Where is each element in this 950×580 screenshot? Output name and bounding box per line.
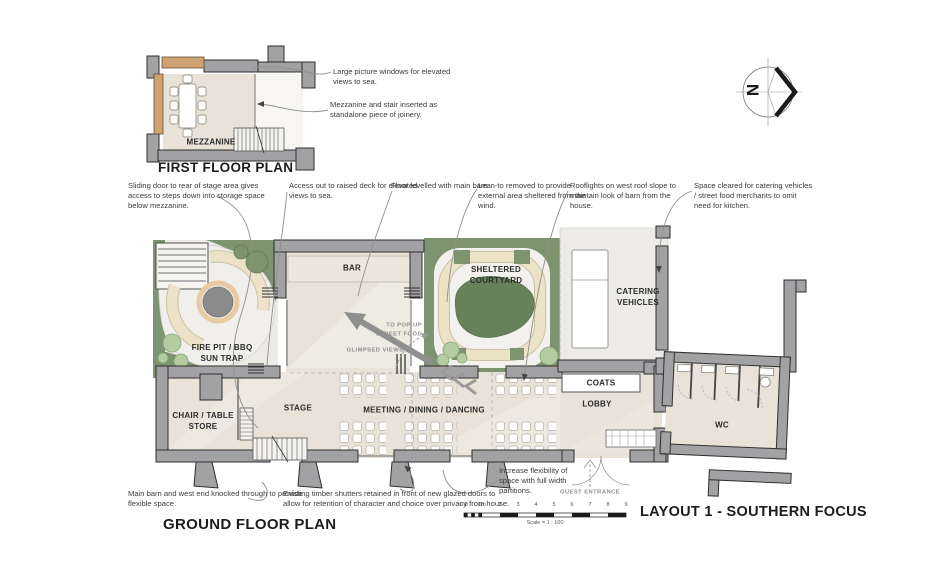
external-steps [156, 243, 208, 289]
room-label-catering-vehicles: CATERING VEHICLES [616, 286, 659, 308]
scale-bar: 0.0 1m 2 3 4 5 6 7 8 9 Scale = 1 : 100 [464, 502, 634, 532]
note-glimpsed-views: GLIMPSED VIEWS [347, 347, 404, 356]
scale-tick: 5 [546, 502, 562, 508]
fire-pit [203, 287, 233, 317]
entrance-doors [572, 456, 630, 485]
annotation-sliding-door: Sliding door to rear of stage area gives… [128, 181, 268, 211]
room-label-stage: STAGE [284, 402, 312, 413]
ground-floor-plan-title: GROUND FLOOR PLAN [163, 516, 336, 533]
room-label-lobby: LOBBY [582, 398, 611, 409]
scale-tick: 7 [582, 502, 598, 508]
scale-tick: 8 [600, 502, 616, 508]
annotation-main-barn: Main barn and west end knocked through t… [128, 489, 306, 509]
annotation-mezzanine-joinery: Mezzanine and stair inserted as standalo… [330, 100, 465, 120]
room-label-wc: WC [715, 419, 729, 430]
scale-tick: 0.0 [456, 502, 472, 508]
scale-caption: Scale = 1 : 100 [464, 520, 626, 526]
guest-entrance-arrow [584, 460, 596, 487]
room-label-coats: COATS [587, 377, 616, 388]
first-floor-plan-drawing [147, 46, 315, 170]
annotation-large-windows: Large picture windows for elevated views… [333, 67, 468, 87]
lobby-bench [606, 430, 656, 447]
sheltered-courtyard-zone [424, 238, 560, 378]
room-label-mezzanine: MEZZANINE [187, 136, 236, 147]
north-label: N [742, 79, 762, 101]
room-label-fire-pit: FIRE PIT / BBQ SUN TRAP [192, 342, 253, 364]
first-floor-plan-title: FIRST FLOOR PLAN [158, 160, 293, 175]
scale-tick: 2 [492, 502, 508, 508]
scale-tick: 3 [510, 502, 526, 508]
scale-tick: 1m [474, 502, 490, 508]
scale-tick: 4 [528, 502, 544, 508]
scale-tick: 6 [564, 502, 580, 508]
annotation-space-cleared: Space cleared for catering vehicles / st… [694, 181, 814, 211]
catering-van [572, 250, 608, 348]
layout-title: LAYOUT 1 - SOUTHERN FOCUS [640, 504, 867, 520]
room-label-meeting: MEETING / DINING / DANCING [363, 404, 485, 415]
room-label-sheltered-courtyard: SHELTERED COURTYARD [470, 264, 523, 286]
room-label-chair-store: CHAIR / TABLE STORE [172, 410, 233, 432]
floor-plan-sheet: FIRST FLOOR PLAN GROUND FLOOR PLAN LAYOU… [0, 0, 950, 580]
note-pop-up-street-food: TO POP-UP STREET FOOD [376, 321, 422, 338]
room-label-bar: BAR [343, 262, 361, 273]
scale-tick: 9 [618, 502, 634, 508]
annotation-rooflights: Rooflights on west roof slope to maintai… [570, 181, 695, 211]
